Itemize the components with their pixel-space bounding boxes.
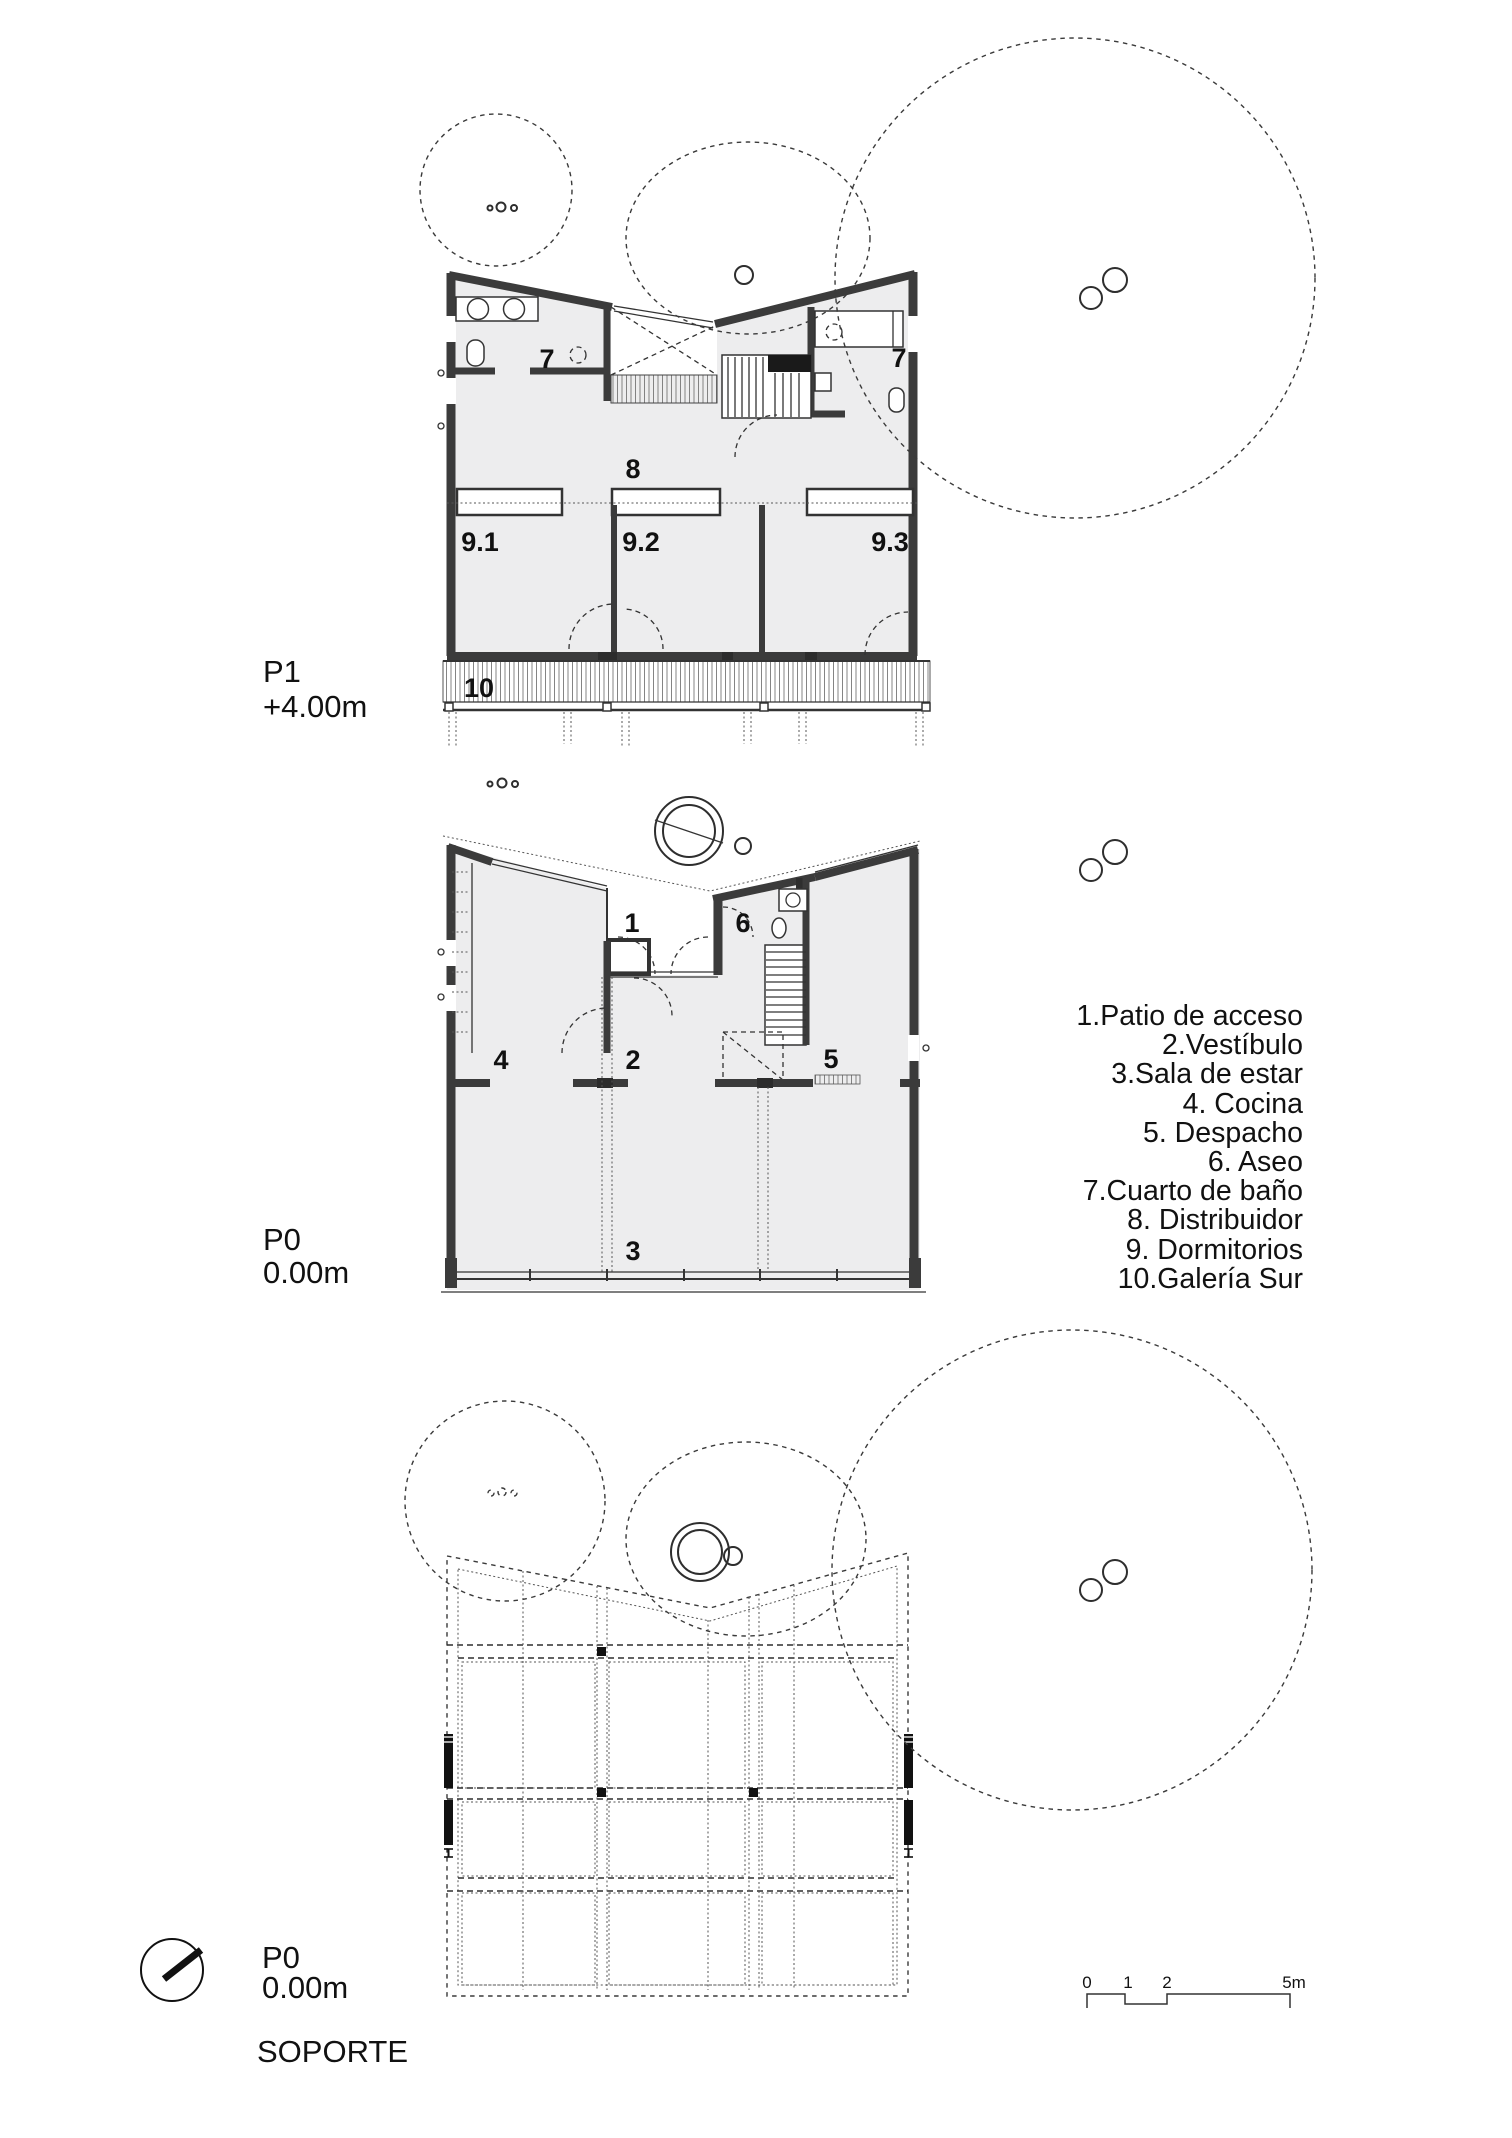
- entry-closet: [609, 940, 649, 974]
- legend-item: 8. Distribuidor: [1127, 1204, 1303, 1236]
- sink-icon: [468, 299, 489, 320]
- room-label-dormitorio-2: 9.2: [622, 527, 660, 557]
- pilotis: [449, 712, 923, 747]
- soporte-caption: SOPORTE: [257, 2034, 408, 2069]
- room-label-dormitorio-1: 9.1: [461, 527, 499, 557]
- tree-trunk: [671, 1523, 729, 1581]
- room-label-galeria: 10: [464, 673, 494, 703]
- north-indicator: [141, 1939, 203, 2001]
- tree-canopy: [420, 114, 572, 266]
- legend-item: 7.Cuarto de baño: [1083, 1175, 1303, 1207]
- room-label-sala: 3: [625, 1236, 640, 1266]
- sink-icon: [504, 299, 525, 320]
- p1-elevation: +4.00m: [263, 689, 367, 724]
- legend-item: 9. Dormitorios: [1126, 1234, 1303, 1266]
- toilet-icon: [772, 918, 786, 938]
- legend-item: 10.Galería Sur: [1118, 1263, 1304, 1295]
- scale-label-5m: 5m: [1282, 1973, 1306, 1992]
- legend-item: 4. Cocina: [1183, 1088, 1304, 1120]
- scale-label-0: 0: [1082, 1973, 1091, 1992]
- room-label-despacho: 5: [823, 1044, 838, 1074]
- trees-soporte: [405, 1330, 1312, 1810]
- deck-cells: [462, 1662, 893, 1985]
- tree-canopy: [405, 1401, 605, 1601]
- room-label-bath-left: 7: [539, 344, 554, 374]
- p1-title: P1: [263, 654, 301, 689]
- legend-item: 2.Vestíbulo: [1162, 1029, 1303, 1061]
- sink-icon: [815, 373, 831, 391]
- toilet-icon: [467, 340, 484, 366]
- support-plan: [444, 1553, 913, 1996]
- bath-counter: [779, 889, 807, 911]
- legend: 1.Patio de acceso 2.Vestíbulo 3.Sala de …: [1076, 1000, 1303, 1295]
- p0-title: P0: [263, 1222, 301, 1257]
- legend-item: 3.Sala de estar: [1111, 1058, 1303, 1090]
- tree-canopy: [626, 1442, 866, 1636]
- room-label-dormitorio-3: 9.3: [871, 527, 909, 557]
- room-label-patio: 1: [624, 908, 639, 938]
- room-label-vestibulo: 2: [625, 1045, 640, 1075]
- legend-item: 1.Patio de acceso: [1076, 1000, 1303, 1032]
- north-needle-icon: [164, 1950, 201, 1979]
- room-label-bath-right: 7: [891, 343, 906, 373]
- plan-titles: P1 +4.00m P0 0.00m P0 0.00m SOPORTE: [257, 654, 408, 2069]
- plans-svg: 7 7 8 9.1 9.2 9.3 10: [0, 0, 1512, 2138]
- drawing-sheet: 7 7 8 9.1 9.2 9.3 10: [0, 0, 1512, 2138]
- south-gallery: [443, 661, 930, 711]
- room-label-aseo: 6: [735, 908, 750, 938]
- floor-plan-p0: 1 6 4 2 5 3: [438, 836, 929, 1292]
- bed-icon: [815, 311, 903, 347]
- legend-item: 5. Despacho: [1143, 1117, 1303, 1149]
- scale-label-1: 1: [1123, 1973, 1132, 1992]
- floor-plan-p1: 7 7 8 9.1 9.2 9.3 10: [438, 272, 930, 747]
- trees-p0: [488, 779, 1128, 882]
- scale-bar: 0 1 2 5m: [1082, 1973, 1306, 2008]
- toilet-icon: [889, 388, 904, 412]
- room-label-cocina: 4: [493, 1045, 508, 1075]
- scale-bar-line: [1087, 1994, 1290, 2008]
- room-label-distribuidor: 8: [625, 454, 640, 484]
- legend-item: 6. Aseo: [1208, 1146, 1303, 1178]
- p0-elevation: 0.00m: [263, 1255, 349, 1290]
- steel-column-left: [444, 1734, 453, 1857]
- scale-label-2: 2: [1162, 1973, 1171, 1992]
- soporte-elevation: 0.00m: [262, 1970, 348, 2005]
- steel-column-right: [904, 1734, 913, 1857]
